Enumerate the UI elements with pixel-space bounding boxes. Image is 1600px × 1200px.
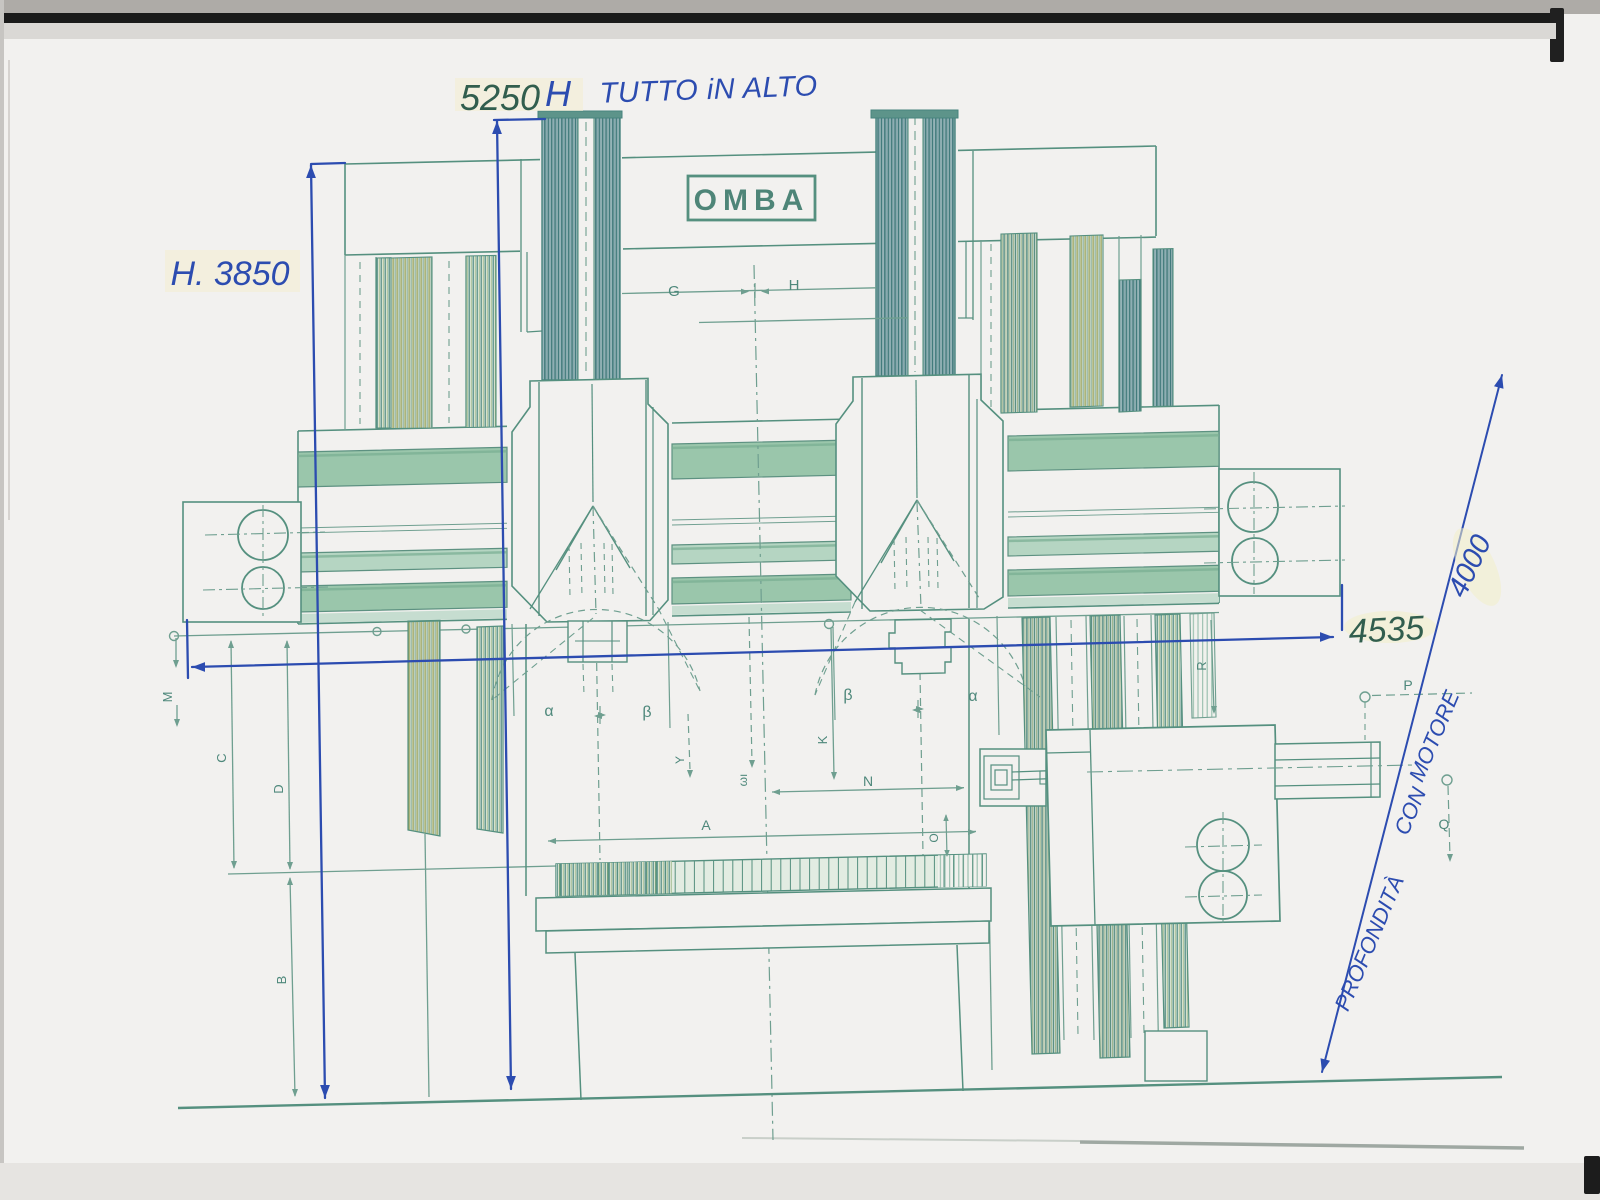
svg-text:D: D	[271, 784, 286, 793]
svg-text:β: β	[642, 704, 651, 721]
svg-text:H: H	[545, 73, 572, 114]
svg-text:B: B	[274, 976, 289, 985]
svg-text:OMBA: OMBA	[694, 184, 810, 217]
svg-text:α: α	[544, 703, 553, 720]
svg-text:Y: Y	[673, 756, 687, 764]
svg-text:N: N	[863, 773, 873, 789]
svg-text:Q: Q	[1439, 816, 1450, 832]
svg-text:C: C	[214, 753, 229, 762]
svg-text:P: P	[1403, 677, 1412, 693]
svg-text:A: A	[701, 817, 711, 833]
svg-text:α: α	[968, 688, 977, 705]
svg-text:ωı: ωı	[736, 774, 750, 787]
svg-text:5250: 5250	[460, 77, 540, 118]
svg-text:G: G	[668, 283, 680, 300]
svg-text:O: O	[927, 833, 941, 842]
svg-text:M: M	[160, 692, 175, 703]
svg-text:β: β	[843, 687, 852, 704]
svg-text:4535: 4535	[1348, 609, 1426, 651]
svg-text:R: R	[1194, 661, 1209, 670]
svg-text:H: H	[789, 277, 800, 294]
svg-text:H. 3850: H. 3850	[170, 255, 289, 293]
svg-text:K: K	[815, 735, 830, 744]
